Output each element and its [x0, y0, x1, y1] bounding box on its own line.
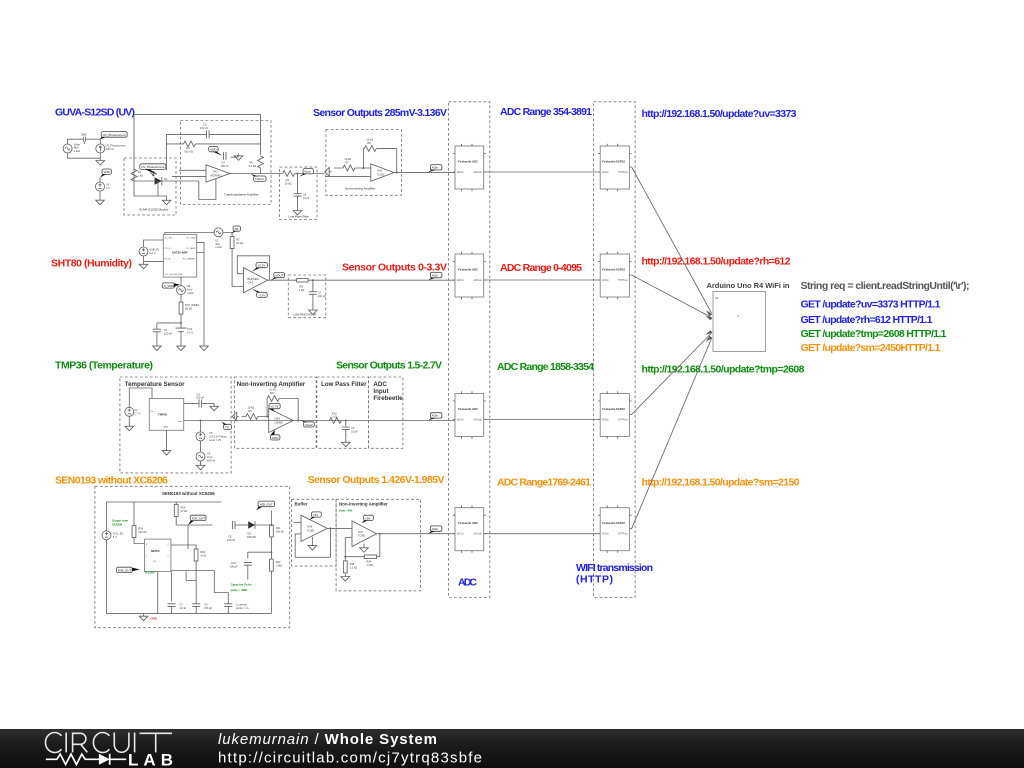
svg-text:1N4148: 1N4148 [247, 535, 257, 539]
svg-text:1 kHz: 1 kHz [215, 245, 222, 249]
svg-text:http://192.168.1.50/update?rh=: http://192.168.1.50/update?rh=612 [642, 256, 791, 268]
svg-text:R2: R2 [187, 146, 191, 150]
svg-text:OA7: OA7 [358, 530, 364, 534]
svg-text:1 MΩ: 1 MΩ [367, 563, 373, 567]
svg-text:GUVA-S12SD (UV): GUVA-S12SD (UV) [55, 107, 135, 119]
svg-text:Vout: Vout [304, 170, 310, 174]
svg-text:R45_OUT: R45_OUT [118, 568, 132, 572]
svg-text:910 kΩ: 910 kΩ [185, 150, 193, 154]
svg-text:-3.3V: -3.3V [258, 293, 265, 297]
svg-text:ADC: ADC [458, 577, 477, 589]
svg-text:100 μF: 100 μF [318, 294, 327, 298]
svg-text:(HTTP): (HTTP) [576, 574, 613, 586]
svg-text:C2: C2 [318, 291, 322, 295]
svg-text:Sensor Outputs 1.5-2.7V: Sensor Outputs 1.5-2.7V [336, 360, 442, 372]
svg-text:VDD: VDD [104, 170, 111, 174]
svg-text:C1: C1 [164, 328, 168, 332]
svg-text:Buffer: Buffer [295, 502, 308, 507]
svg-text:R9: R9 [300, 284, 304, 288]
svg-text:PC_SN: PC_SN [165, 238, 173, 240]
svg-text:R18: R18 [138, 527, 143, 531]
svg-text:220 kΩ: 220 kΩ [138, 530, 146, 534]
svg-text:OA6: OA6 [307, 525, 313, 529]
svg-text:C10: C10 [231, 561, 236, 565]
svg-text:100 nF: 100 nF [196, 396, 204, 400]
svg-text:Sensor Outputs 285mV-3.136V: Sensor Outputs 285mV-3.136V [313, 107, 447, 119]
svg-text:ADC: ADC [373, 381, 387, 388]
svg-text:UV_Photocurrent: UV_Photocurrent [141, 165, 164, 169]
svg-text:10 μF: 10 μF [303, 196, 310, 200]
svg-text:Non-Inverting Amplifier: Non-Inverting Amplifier [345, 187, 375, 191]
svg-text:R30: R30 [200, 550, 205, 554]
svg-text:R4: R4 [286, 178, 290, 182]
svg-text:GUVA-S12SD Module: GUVA-S12SD Module [139, 208, 169, 212]
svg-text:100 nF: 100 nF [164, 332, 172, 336]
svg-text:Firebeetle: Firebeetle [373, 395, 403, 402]
svg-text:R34: R34 [367, 559, 372, 563]
svg-text:NE555: NE555 [151, 549, 160, 553]
svg-text:D1: D1 [164, 177, 168, 181]
svg-text:temp = 25: temp = 25 [209, 438, 221, 442]
svg-text:SEN0193 without XC6206: SEN0193 without XC6206 [162, 491, 215, 496]
svg-text:R10: R10 [332, 411, 337, 415]
svg-text:1 kΩ: 1 kΩ [138, 174, 143, 178]
svg-text:PC_VDD: PC_VDD [187, 238, 196, 240]
svg-text:ADC Range 0-4095: ADC Range 0-4095 [500, 262, 582, 274]
svg-text:X_VDD: X_VDD [164, 284, 175, 288]
svg-text:lukemurnain / Whole System: lukemurnain / Whole System [218, 731, 437, 748]
svg-text:LAB: LAB [128, 751, 173, 768]
svg-text:1 kΩ: 1 kΩ [299, 288, 304, 292]
svg-text:4mV: 4mV [207, 455, 213, 459]
svg-text:R21: R21 [276, 526, 281, 530]
svg-text:ADC Range 1858-3354: ADC Range 1858-3354 [497, 361, 594, 373]
svg-text:WIFI transmission: WIFI transmission [576, 562, 653, 574]
svg-text:Transimpedance Amplifier: Transimpedance Amplifier [224, 193, 259, 197]
svg-text:R6: R6 [250, 161, 254, 165]
svg-text:10 kΩ: 10 kΩ [269, 387, 276, 391]
svg-text:X08_OUT: X08_OUT [260, 502, 274, 506]
svg-text:TMP36 (Temperature): TMP36 (Temperature) [55, 360, 153, 372]
svg-text:ADC Range 354-3891: ADC Range 354-3891 [500, 106, 592, 118]
svg-text:100 nF: 100 nF [200, 126, 208, 130]
svg-text:A0: A0 [715, 296, 719, 300]
svg-text:SEN0193 without XC6206: SEN0193 without XC6206 [55, 475, 168, 487]
svg-text:Capacitor Pulse: Capacitor Pulse [231, 583, 253, 587]
svg-text:C_sensor: C_sensor [236, 603, 247, 607]
svg-text:1 MΩ: 1 MΩ [276, 564, 282, 568]
svg-text:C3: C3 [203, 123, 207, 127]
svg-text:C7: C7 [179, 603, 183, 607]
svg-text:USB_5V: USB_5V [149, 247, 159, 251]
svg-text:Sensor Outputs 1.426V-1.985V: Sensor Outputs 1.426V-1.985V [308, 474, 445, 486]
svg-text:0.5-2.0 V*temp: 0.5-2.0 V*temp [209, 434, 227, 438]
svg-text:UV_Photocurrent: UV_Photocurrent [106, 143, 126, 147]
svg-text:3.3 kΩ: 3.3 kΩ [249, 164, 257, 168]
svg-text:10 kΩ: 10 kΩ [247, 405, 254, 409]
svg-text:TMP36: TMP36 [158, 413, 167, 417]
svg-text:GND: GND [151, 617, 157, 621]
svg-text:1 kHz: 1 kHz [187, 291, 194, 295]
svg-text:+3.3V: +3.3V [257, 264, 265, 268]
svg-text:http://192.168.1.50/update?sm=: http://192.168.1.50/update?sm=2150 [642, 477, 800, 489]
svg-text:Vout2: Vout2 [305, 423, 313, 427]
svg-text:UV_Photocurrent: UV_Photocurrent [103, 133, 126, 137]
svg-text:5 V: 5 V [113, 535, 117, 539]
svg-text:OA2: OA2 [377, 169, 383, 173]
svg-text:http://192.168.1.50/update?tmp: http://192.168.1.50/update?tmp=2608 [642, 364, 805, 376]
svg-text:470 μF: 470 μF [204, 606, 213, 610]
svg-text:C9: C9 [351, 426, 355, 430]
svg-text:XC6206: XC6206 [112, 522, 123, 526]
svg-text:OA4: OA4 [275, 417, 281, 421]
svg-text:PC_S: PC_S [165, 248, 171, 250]
svg-text:OA1: OA1 [213, 170, 219, 174]
svg-text:Arduino Uno R4 WiFi in: Arduino Uno R4 WiFi in [707, 281, 790, 290]
svg-text:VO4: VO4 [187, 327, 193, 331]
svg-text:4.2 V: 4.2 V [187, 331, 193, 335]
svg-text:TLC555: TLC555 [145, 571, 156, 575]
svg-text:C8: C8 [228, 535, 232, 539]
svg-text:R5: R5 [235, 227, 239, 231]
svg-text:C8: C8 [303, 193, 307, 197]
svg-text:GND: GND [272, 436, 280, 440]
svg-text:V8: V8 [187, 284, 191, 288]
svg-text:10 kΩ: 10 kΩ [366, 138, 373, 142]
svg-text:ADC Range1769-2461: ADC Range1769-2461 [497, 477, 591, 489]
svg-text:SW1: SW1 [81, 132, 87, 136]
svg-text:Temperature Sensor: Temperature Sensor [125, 381, 185, 388]
svg-text:2.2 kΩ: 2.2 kΩ [350, 565, 358, 569]
svg-text:100 nF: 100 nF [227, 538, 235, 542]
svg-text:Non-inverting Amplifier: Non-inverting Amplifier [339, 502, 388, 507]
svg-text:GET /update?rh=612 HTTP/1.1: GET /update?rh=612 HTTP/1.1 [801, 314, 933, 326]
svg-text:Vout: Vout [178, 420, 183, 423]
svg-text:GET /update?tmp=2608 HTTP/1.1: GET /update?tmp=2608 HTTP/1.1 [801, 328, 947, 340]
svg-text:2.7 V: 2.7 V [134, 411, 140, 415]
svg-text:47 kΩ: 47 kΩ [181, 509, 188, 513]
svg-text:D6: D6 [248, 532, 252, 536]
svg-text:LM358: LM358 [275, 420, 283, 424]
svg-text:GET /update?uv=3373 HTTP/1.1: GET /update?uv=3373 HTTP/1.1 [801, 299, 941, 311]
svg-text:PC_SncVSS VSS: PC_SncVSS VSS [165, 274, 183, 276]
svg-text:Non-Inverting Amplifier: Non-Inverting Amplifier [237, 381, 306, 388]
svg-text:VCC_DC: VCC_DC [113, 531, 124, 535]
svg-text:http://192.168.1.50/update?uv=: http://192.168.1.50/update?uv=3373 [642, 108, 797, 120]
svg-text:probe = 1n: probe = 1n [236, 606, 249, 610]
svg-text:TL081: TL081 [307, 528, 315, 532]
svg-text:500 Hz: 500 Hz [207, 458, 216, 462]
svg-text:String req = client.readString: String req = client.readStringUntil('\r'… [801, 280, 970, 292]
svg-text:C9: C9 [204, 603, 208, 607]
svg-text:V2: V2 [106, 183, 110, 187]
svg-text:pulse = 1MΩ: pulse = 1MΩ [231, 588, 248, 592]
svg-text:10 kΩ: 10 kΩ [236, 241, 243, 245]
svg-text:Input: Input [373, 388, 388, 395]
svg-text:100 μF: 100 μF [230, 565, 239, 569]
svg-text:V5: V5 [209, 431, 213, 435]
svg-text:10 kΩ: 10 kΩ [344, 157, 351, 161]
svg-text:10 kΩ: 10 kΩ [285, 181, 292, 185]
svg-text:4 V: 4 V [106, 186, 110, 190]
svg-text:PC_R: PC_R [165, 258, 171, 260]
svg-text:Low Pass Filter: Low Pass Filter [321, 381, 367, 388]
svg-text:100 nA: 100 nA [106, 147, 114, 151]
svg-text:X04_OUT: X04_OUT [192, 516, 206, 520]
svg-text:PC_ADD: PC_ADD [187, 247, 196, 250]
svg-text:100 nF: 100 nF [221, 164, 229, 168]
svg-text:90 kΩ: 90 kΩ [185, 307, 192, 311]
svg-text:Sensor Outputs 0-3.3V: Sensor Outputs 0-3.3V [342, 262, 447, 274]
svg-text:TS: TS [225, 425, 229, 429]
svg-text:1 kHz: 1 kHz [74, 149, 81, 153]
svg-text:TLV01: TLV01 [377, 172, 385, 176]
svg-text:R33: R33 [350, 562, 355, 566]
svg-text:SHT80 (Humidity): SHT80 (Humidity) [51, 258, 132, 270]
svg-text:2 kΩ: 2 kΩ [200, 554, 205, 558]
svg-text:R22: R22 [276, 560, 281, 564]
svg-text:SHT30 4WP: SHT30 4WP [172, 251, 188, 255]
svg-text:+5V: +5V [313, 513, 318, 517]
svg-text:1 kΩ: 1 kΩ [331, 415, 336, 419]
svg-text:OA3: OA3 [248, 281, 254, 285]
svg-text:4.2 V: 4.2 V [149, 251, 155, 255]
svg-text:10 nF: 10 nF [179, 606, 186, 610]
svg-text:TL081: TL081 [358, 534, 366, 538]
svg-text:10 μF: 10 μF [351, 430, 358, 434]
svg-text:R5: R5 [236, 238, 240, 242]
svg-text:+2.7V: +2.7V [270, 405, 278, 409]
svg-text:GND: GND [163, 427, 168, 429]
svg-text:BAT_WRES: BAT_WRES [185, 303, 199, 307]
svg-text:Gain ~400: Gain ~400 [339, 509, 353, 513]
svg-text:VDD: VDD [210, 148, 217, 152]
svg-text:PC_nRESET: PC_nRESET [183, 258, 196, 260]
svg-text:+5V: +5V [365, 516, 370, 520]
svg-text:TIAout: TIAout [255, 177, 264, 181]
svg-text:R1: R1 [138, 170, 142, 174]
svg-text:Low Pass Filter: Low Pass Filter [289, 215, 310, 219]
svg-text:V4: V4 [134, 408, 138, 412]
svg-text:C4: C4 [222, 160, 226, 164]
svg-text:GET /update?sm=2450HTTP/1.1: GET /update?sm=2450HTTP/1.1 [801, 342, 941, 354]
svg-text:C5: C5 [197, 392, 201, 396]
svg-text:4mV: 4mV [187, 288, 193, 292]
svg-text:VOUT: VOUT [275, 274, 284, 278]
svg-text:MCP6411: MCP6411 [211, 173, 223, 177]
svg-text:100 kΩ: 100 kΩ [276, 530, 284, 534]
svg-text:V6: V6 [207, 451, 211, 455]
svg-text:R24: R24 [181, 506, 186, 510]
